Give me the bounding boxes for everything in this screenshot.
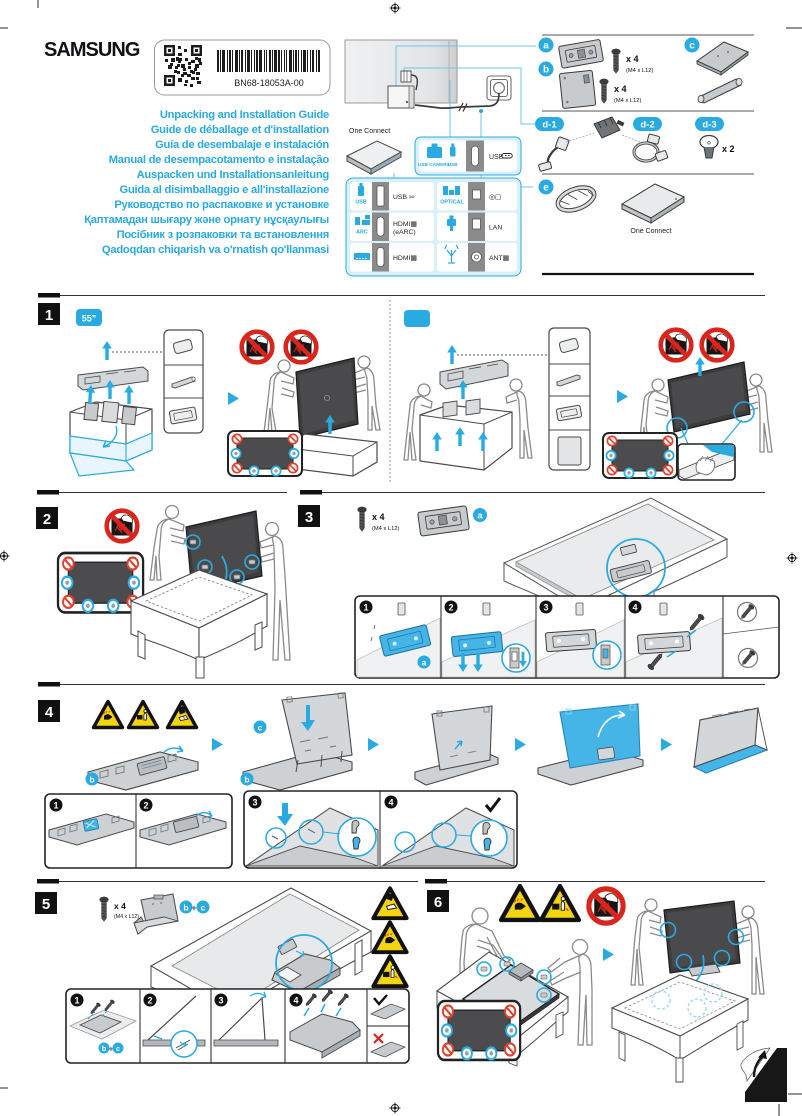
svg-text:2: 2 [143, 801, 148, 811]
svg-text:⚙: ⚙ [707, 141, 712, 147]
svg-text:ANT▦: ANT▦ [489, 255, 509, 262]
svg-text:OPTICAL: OPTICAL [440, 200, 464, 206]
svg-text:1: 1 [53, 801, 58, 811]
svg-text:x 4: x 4 [626, 54, 639, 64]
svg-text:(eARC): (eARC) [393, 229, 416, 236]
svg-text:4: 4 [45, 704, 54, 721]
svg-text:Auspacken und Installationsanl: Auspacken und Installationsanleitung [137, 169, 330, 181]
svg-text:x 4: x 4 [372, 512, 385, 522]
svg-text:a: a [543, 41, 549, 52]
svg-text:HDMI▦: HDMI▦ [393, 255, 417, 262]
svg-text:Guía de desembalaje e instalac: Guía de desembalaje e instalación [155, 139, 329, 151]
svg-text:2: 2 [448, 603, 453, 613]
svg-text:1: 1 [74, 996, 79, 1006]
svg-text:(M4 x L12): (M4 x L12) [614, 98, 641, 104]
svg-text:4: 4 [293, 996, 298, 1006]
svg-text:4: 4 [632, 603, 637, 613]
svg-text:b: b [183, 903, 188, 913]
svg-text:(M4 x L12): (M4 x L12) [114, 914, 139, 920]
svg-text:◎▢: ◎▢ [489, 194, 501, 201]
svg-text:BN68-18053A-00: BN68-18053A-00 [234, 78, 304, 88]
svg-text:Руководство по распаковке и ус: Руководство по распаковке и установке [114, 199, 329, 211]
svg-text:d-2: d-2 [640, 120, 654, 131]
svg-text:Қаптамадан шығару және орнату: Қаптамадан шығару және орнату нұсқаулығы [84, 214, 329, 226]
svg-text:Guida al disimballaggio e all': Guida al disimballaggio e all'installazi… [120, 184, 330, 196]
svg-text:Unpacking and Installation Gui: Unpacking and Installation Guide [160, 109, 329, 121]
svg-text:c: c [689, 41, 695, 52]
svg-text:a: a [477, 511, 483, 522]
svg-text:c: c [116, 1044, 120, 1053]
svg-text:Guide de déballage et d'instal: Guide de déballage et d'installation [151, 124, 330, 136]
svg-text:b: b [244, 775, 249, 785]
svg-text:3: 3 [252, 798, 257, 808]
svg-text:a: a [422, 658, 427, 668]
svg-text:HDMI▦: HDMI▦ [393, 221, 417, 228]
svg-text:1: 1 [45, 307, 53, 324]
svg-text:3: 3 [218, 996, 223, 1006]
svg-text:USB ⇰: USB ⇰ [393, 194, 415, 201]
svg-text:ARC: ARC [356, 230, 368, 236]
svg-text:x 4: x 4 [114, 901, 126, 911]
svg-text:55”: 55” [82, 314, 97, 324]
svg-text:c: c [201, 903, 206, 913]
svg-text:3: 3 [543, 603, 548, 613]
svg-text:Посібник з розпаковки та встан: Посібник з розпаковки та встановлення [117, 229, 329, 241]
svg-text:b: b [89, 775, 94, 785]
svg-text:c: c [258, 723, 263, 733]
svg-text:b: b [543, 65, 549, 76]
svg-text:2: 2 [43, 511, 51, 528]
svg-text:x 4: x 4 [614, 84, 627, 94]
svg-text:1: 1 [363, 603, 368, 613]
svg-text:x 2: x 2 [722, 144, 735, 154]
svg-text:d-1: d-1 [542, 120, 557, 131]
svg-text:SAMSUNG: SAMSUNG [44, 39, 141, 61]
svg-text:(M4 x L12): (M4 x L12) [626, 68, 653, 74]
svg-text:5: 5 [42, 896, 50, 913]
svg-text:4: 4 [388, 798, 393, 808]
svg-text:Manual de desempacotamento e i: Manual de desempacotamento e instalação [109, 154, 330, 166]
svg-text:One Connect: One Connect [349, 128, 390, 135]
svg-text:2: 2 [147, 996, 152, 1006]
svg-text:+: + [191, 903, 196, 913]
svg-text:USB: USB [355, 200, 366, 206]
svg-text:(M4 x L12): (M4 x L12) [372, 526, 399, 532]
svg-text:6: 6 [434, 894, 442, 911]
svg-text:One Connect: One Connect [630, 228, 671, 235]
svg-text:LAN: LAN [489, 225, 502, 232]
svg-text:b: b [102, 1044, 107, 1053]
svg-text:USB: USB [447, 162, 458, 168]
svg-text:e: e [543, 183, 549, 194]
svg-text:Qadoqdan chiqarish va o'rnatis: Qadoqdan chiqarish va o'rnatish qo'llanm… [102, 244, 329, 256]
svg-text:d-3: d-3 [702, 120, 716, 131]
svg-text:3: 3 [305, 509, 313, 526]
svg-text:USB CAMERA: USB CAMERA [418, 162, 451, 168]
